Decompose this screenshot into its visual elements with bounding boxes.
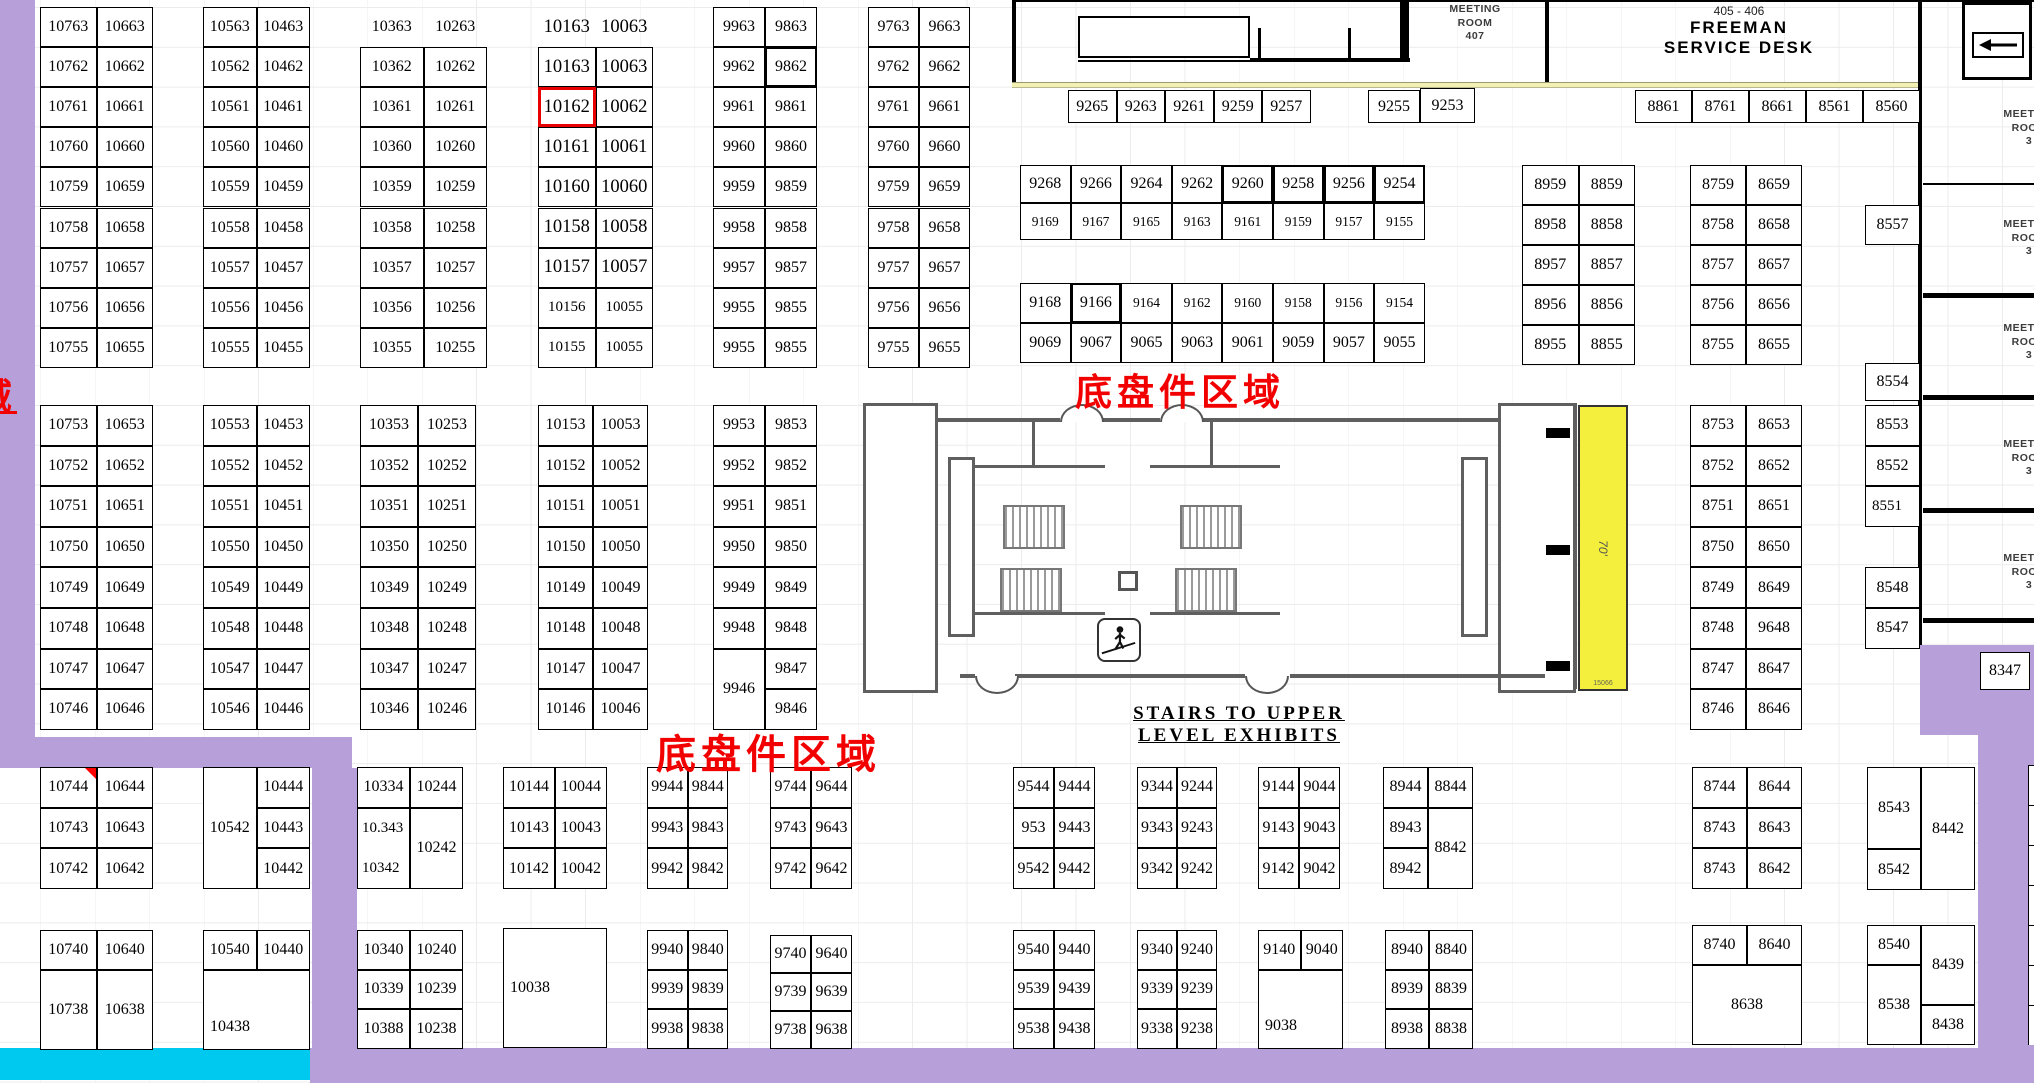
booth-9040[interactable]: 9040 <box>1301 930 1344 970</box>
booth-9955[interactable]: 9955 <box>713 328 765 368</box>
booth-9763[interactable]: 9763 <box>868 7 919 47</box>
booth-9164[interactable]: 9164 <box>1121 283 1172 323</box>
booth-9156[interactable]: 9156 <box>1324 283 1375 323</box>
booth-8761[interactable]: 8761 <box>1692 90 1749 123</box>
booth-9838[interactable]: 9838 <box>688 1009 729 1049</box>
booth-10242[interactable]: 10242 <box>410 808 463 889</box>
booth-8944[interactable]: 8944 <box>1383 767 1428 808</box>
booth-10046[interactable]: 10046 <box>593 689 648 730</box>
booth-10450[interactable]: 10450 <box>257 527 311 568</box>
booth-10548[interactable]: 10548 <box>203 608 257 649</box>
booth-9861[interactable]: 9861 <box>765 87 817 127</box>
booth-10744[interactable]: 10744 <box>40 767 97 808</box>
booth-8838[interactable]: 8838 <box>1429 1009 1473 1049</box>
booth-9339[interactable]: 9339 <box>1137 970 1177 1010</box>
booth-953[interactable]: 953 <box>1013 808 1054 849</box>
booth-9855[interactable]: 9855 <box>765 288 817 328</box>
booth-10460[interactable]: 10460 <box>257 127 311 167</box>
booth-10462[interactable]: 10462 <box>257 47 311 87</box>
booth-9842[interactable]: 9842 <box>688 848 729 889</box>
booth-9263[interactable]: 9263 <box>1117 90 1166 123</box>
booth-9540[interactable]: 9540 <box>1013 930 1054 970</box>
booth-10644[interactable]: 10644 <box>97 767 154 808</box>
booth-10249[interactable]: 10249 <box>418 567 476 608</box>
booth-10239[interactable]: 10239 <box>410 970 463 1010</box>
booth-8647[interactable]: 8647 <box>1746 649 1802 690</box>
booth-8740[interactable]: 8740 <box>1692 925 1747 965</box>
booth-9539[interactable]: 9539 <box>1013 970 1054 1010</box>
booth-9168[interactable]: 9168 <box>1020 283 1071 323</box>
booth-8643[interactable]: 8643 <box>1747 808 1802 849</box>
booth-10057[interactable]: 10057 <box>596 248 654 288</box>
booth-10747[interactable]: 10747 <box>40 649 97 690</box>
booth-10751[interactable]: 10751 <box>40 486 97 527</box>
booth-8538[interactable]: 8538 <box>1867 965 1921 1045</box>
booth-10060[interactable]: 10060 <box>596 167 654 207</box>
booth-10163[interactable]: 10163 <box>538 7 596 47</box>
booth-10150[interactable]: 10150 <box>538 527 593 568</box>
booth-9161[interactable]: 9161 <box>1222 203 1273 241</box>
booth-10049[interactable]: 10049 <box>593 567 648 608</box>
booth-9943[interactable]: 9943 <box>647 808 688 849</box>
booth-9069[interactable]: 9069 <box>1020 323 1071 363</box>
booth-10258[interactable]: 10258 <box>424 208 488 248</box>
booth-9955[interactable]: 9955 <box>713 288 765 328</box>
booth-10356[interactable]: 10356 <box>360 288 424 328</box>
booth-8557[interactable]: 8557 <box>1865 205 1920 245</box>
booth-10149[interactable]: 10149 <box>538 567 593 608</box>
booth-8651[interactable]: 8651 <box>1746 486 1802 527</box>
booth-9662[interactable]: 9662 <box>919 47 970 87</box>
booth-8859[interactable]: 8859 <box>1579 165 1636 205</box>
booth-8757[interactable]: 8757 <box>1690 245 1746 285</box>
booth-9160[interactable]: 9160 <box>1222 283 1273 323</box>
booth-10346[interactable]: 10346 <box>360 689 418 730</box>
booth-10053[interactable]: 10053 <box>593 405 648 446</box>
booth-10561[interactable]: 10561 <box>203 87 257 127</box>
booth-9952[interactable]: 9952 <box>713 446 765 487</box>
booth-10260[interactable]: 10260 <box>424 127 488 167</box>
booth-10552[interactable]: 10552 <box>203 446 257 487</box>
booth-10256[interactable]: 10256 <box>424 288 488 328</box>
booth-9642[interactable]: 9642 <box>811 848 852 889</box>
booth-8856[interactable]: 8856 <box>1579 285 1636 325</box>
booth-9850[interactable]: 9850 <box>765 527 817 568</box>
booth-9958[interactable]: 9958 <box>713 208 765 248</box>
booth-8857[interactable]: 8857 <box>1579 245 1636 285</box>
booth-9848[interactable]: 9848 <box>765 608 817 649</box>
booth-9938[interactable]: 9938 <box>647 1009 688 1049</box>
booth-10453[interactable]: 10453 <box>257 405 311 446</box>
booth-9542[interactable]: 9542 <box>1013 848 1054 889</box>
booth-10740[interactable]: 10740 <box>40 930 97 970</box>
booth-9847[interactable]: 9847 <box>765 649 817 690</box>
booth-10262[interactable]: 10262 <box>424 47 488 87</box>
booth-10253[interactable]: 10253 <box>418 405 476 446</box>
booth-10458[interactable]: 10458 <box>257 208 311 248</box>
booth-10248[interactable]: 10248 <box>418 608 476 649</box>
booth-9949[interactable]: 9949 <box>713 567 765 608</box>
booth-9852[interactable]: 9852 <box>765 446 817 487</box>
booth-8744[interactable]: 8744 <box>1692 767 1747 808</box>
booth-9439[interactable]: 9439 <box>1054 970 1095 1010</box>
booth-8956[interactable]: 8956 <box>1522 285 1579 325</box>
booth-9343[interactable]: 9343 <box>1137 808 1177 849</box>
booth-10360[interactable]: 10360 <box>360 127 424 167</box>
booth-8749[interactable]: 8749 <box>1690 567 1746 608</box>
booth-10349[interactable]: 10349 <box>360 567 418 608</box>
booth-8746[interactable]: 8746 <box>1690 689 1746 730</box>
booth-8844[interactable]: 8844 <box>1428 767 1473 808</box>
booth-9240[interactable]: 9240 <box>1177 930 1217 970</box>
booth-10162[interactable]: 10162 <box>538 87 596 127</box>
booth-10442[interactable]: 10442 <box>257 848 311 889</box>
booth-9166[interactable]: 9166 <box>1071 283 1122 323</box>
booth-9544[interactable]: 9544 <box>1013 767 1054 808</box>
booth-9862[interactable]: 9862 <box>765 47 817 87</box>
booth-9849[interactable]: 9849 <box>765 567 817 608</box>
booth-8839[interactable]: 8839 <box>1429 970 1473 1010</box>
booth-9443[interactable]: 9443 <box>1054 808 1095 849</box>
booth-8438[interactable]: 8438 <box>1921 1005 1975 1045</box>
booth-10555[interactable]: 10555 <box>203 328 257 368</box>
booth-9259[interactable]: 9259 <box>1214 90 1263 123</box>
booth-8855[interactable]: 8855 <box>1579 325 1636 365</box>
booth-10653[interactable]: 10653 <box>97 405 154 446</box>
booth-10463[interactable]: 10463 <box>257 7 311 47</box>
booth-10551[interactable]: 10551 <box>203 486 257 527</box>
booth-9242[interactable]: 9242 <box>1177 848 1217 889</box>
booth-10052[interactable]: 10052 <box>593 446 648 487</box>
booth-10353[interactable]: 10353 <box>360 405 418 446</box>
booth-9743[interactable]: 9743 <box>770 808 811 849</box>
booth-9962[interactable]: 9962 <box>713 47 765 87</box>
booth-9043[interactable]: 9043 <box>1299 808 1340 849</box>
booth-10347[interactable]: 10347 <box>360 649 418 690</box>
booth-8542[interactable]: 8542 <box>1867 849 1921 890</box>
booth-10648[interactable]: 10648 <box>97 608 154 649</box>
booth-10542[interactable]: 10542 <box>203 767 257 889</box>
booth-10047[interactable]: 10047 <box>593 649 648 690</box>
booth-9638[interactable]: 9638 <box>811 1011 852 1049</box>
booth-9663[interactable]: 9663 <box>919 7 970 47</box>
booth-9238[interactable]: 9238 <box>1177 1009 1217 1049</box>
booth-10255[interactable]: 10255 <box>424 328 488 368</box>
booth-10151[interactable]: 10151 <box>538 486 593 527</box>
booth-10642[interactable]: 10642 <box>97 848 154 889</box>
booth-9855[interactable]: 9855 <box>765 328 817 368</box>
booth-8638[interactable]: 8638 <box>1692 965 1802 1045</box>
booth-10142[interactable]: 10142 <box>503 848 555 889</box>
booth-10157[interactable]: 10157 <box>538 248 596 288</box>
booth-10246[interactable]: 10246 <box>418 689 476 730</box>
booth-9055[interactable]: 9055 <box>1374 323 1425 363</box>
booth-8842[interactable]: 8842 <box>1428 808 1473 889</box>
booth-9044[interactable]: 9044 <box>1299 767 1340 808</box>
booth-9740[interactable]: 9740 <box>770 935 811 973</box>
booth-10452[interactable]: 10452 <box>257 446 311 487</box>
booth-9157[interactable]: 9157 <box>1324 203 1375 241</box>
booth-10247[interactable]: 10247 <box>418 649 476 690</box>
booth-10058[interactable]: 10058 <box>596 208 654 248</box>
booth-10351[interactable]: 10351 <box>360 486 418 527</box>
booth-9167[interactable]: 9167 <box>1071 203 1122 241</box>
booth-10358[interactable]: 10358 <box>360 208 424 248</box>
booth-10361[interactable]: 10361 <box>360 87 424 127</box>
booth-9840[interactable]: 9840 <box>688 930 729 970</box>
booth-9254[interactable]: 9254 <box>1374 165 1425 203</box>
booth-10657[interactable]: 10657 <box>97 248 154 288</box>
booth-10357[interactable]: 10357 <box>360 248 424 288</box>
booth-10240[interactable]: 10240 <box>410 930 463 970</box>
booth-9659[interactable]: 9659 <box>919 167 970 207</box>
booth-10334[interactable]: 10334 <box>357 767 410 808</box>
booth-9859[interactable]: 9859 <box>765 167 817 207</box>
booth-9159[interactable]: 9159 <box>1273 203 1324 241</box>
booth-9042[interactable]: 9042 <box>1299 848 1340 889</box>
booth-10461[interactable]: 10461 <box>257 87 311 127</box>
booth-8750[interactable]: 8750 <box>1690 527 1746 568</box>
booth-10238[interactable]: 10238 <box>410 1009 463 1049</box>
booth-8548[interactable]: 8548 <box>1865 567 1920 608</box>
booth-8655[interactable]: 8655 <box>1746 325 1802 365</box>
booth-10158[interactable]: 10158 <box>538 208 596 248</box>
booth-8657[interactable]: 8657 <box>1746 245 1802 285</box>
booth-10558[interactable]: 10558 <box>203 208 257 248</box>
booth-9643[interactable]: 9643 <box>811 808 852 849</box>
booth-9756[interactable]: 9756 <box>868 288 919 328</box>
booth-9656[interactable]: 9656 <box>919 288 970 328</box>
booth-10055[interactable]: 10055 <box>596 288 654 328</box>
booth-10455[interactable]: 10455 <box>257 328 311 368</box>
booth-10055[interactable]: 10055 <box>596 328 654 368</box>
booth-10755[interactable]: 10755 <box>40 328 97 368</box>
booth-8861[interactable]: 8861 <box>1635 90 1692 123</box>
booth-10244[interactable]: 10244 <box>410 767 463 808</box>
booth-9939[interactable]: 9939 <box>647 970 688 1010</box>
booth-9163[interactable]: 9163 <box>1172 203 1223 241</box>
booth-9742[interactable]: 9742 <box>770 848 811 889</box>
booth-8553[interactable]: 8553 <box>1865 405 1920 446</box>
booth-9261[interactable]: 9261 <box>1165 90 1214 123</box>
booth-10643[interactable]: 10643 <box>97 808 154 849</box>
booth-10655[interactable]: 10655 <box>97 328 154 368</box>
booth-9639[interactable]: 9639 <box>811 973 852 1011</box>
booth-9340[interactable]: 9340 <box>1137 930 1177 970</box>
booth-10662[interactable]: 10662 <box>97 47 154 87</box>
booth-10355[interactable]: 10355 <box>360 328 424 368</box>
booth-10456[interactable]: 10456 <box>257 288 311 328</box>
booth-10263[interactable]: 10263 <box>424 7 488 47</box>
booth-9655[interactable]: 9655 <box>919 328 970 368</box>
booth-8644[interactable]: 8644 <box>1747 767 1802 808</box>
booth-8640[interactable]: 8640 <box>1747 925 1802 965</box>
booth-9538[interactable]: 9538 <box>1013 1009 1054 1049</box>
booth-10449[interactable]: 10449 <box>257 567 311 608</box>
booth-10652[interactable]: 10652 <box>97 446 154 487</box>
booth-9264[interactable]: 9264 <box>1121 165 1172 203</box>
booth-10549[interactable]: 10549 <box>203 567 257 608</box>
booth-10352[interactable]: 10352 <box>360 446 418 487</box>
booth-9759[interactable]: 9759 <box>868 167 919 207</box>
booth-10155[interactable]: 10155 <box>538 328 596 368</box>
booth-9144[interactable]: 9144 <box>1258 767 1299 808</box>
booth-10161[interactable]: 10161 <box>538 127 596 167</box>
booth-9140[interactable]: 9140 <box>1258 930 1301 970</box>
booth-10759[interactable]: 10759 <box>40 167 97 207</box>
booth-10447[interactable]: 10447 <box>257 649 311 690</box>
booth-10160[interactable]: 10160 <box>538 167 596 207</box>
booth-10638[interactable]: 10638 <box>97 970 154 1050</box>
booth-10156[interactable]: 10156 <box>538 288 596 328</box>
booth-9258[interactable]: 9258 <box>1273 165 1324 203</box>
booth-10640[interactable]: 10640 <box>97 930 154 970</box>
booth-10748[interactable]: 10748 <box>40 608 97 649</box>
booth-10459[interactable]: 10459 <box>257 167 311 207</box>
booth-10546[interactable]: 10546 <box>203 689 257 730</box>
booth-10547[interactable]: 10547 <box>203 649 257 690</box>
booth-9067[interactable]: 9067 <box>1071 323 1122 363</box>
booth-8650[interactable]: 8650 <box>1746 527 1802 568</box>
booth-8955[interactable]: 8955 <box>1522 325 1579 365</box>
booth-10556[interactable]: 10556 <box>203 288 257 328</box>
booth-9256[interactable]: 9256 <box>1324 165 1375 203</box>
booth-8642[interactable]: 8642 <box>1747 848 1802 889</box>
booth-9758[interactable]: 9758 <box>868 208 919 248</box>
booth-10146[interactable]: 10146 <box>538 689 593 730</box>
booth-8958[interactable]: 8958 <box>1522 205 1579 245</box>
booth-8755[interactable]: 8755 <box>1690 325 1746 365</box>
booth-10339[interactable]: 10339 <box>357 970 410 1010</box>
booth-8943[interactable]: 8943 <box>1383 808 1428 849</box>
booth-9061[interactable]: 9061 <box>1222 323 1273 363</box>
booth-10261[interactable]: 10261 <box>424 87 488 127</box>
booth-10650[interactable]: 10650 <box>97 527 154 568</box>
booth-9739[interactable]: 9739 <box>770 973 811 1011</box>
booth-9963[interactable]: 9963 <box>713 7 765 47</box>
booth-10762[interactable]: 10762 <box>40 47 97 87</box>
booth-10761[interactable]: 10761 <box>40 87 97 127</box>
booth-9442[interactable]: 9442 <box>1054 848 1095 889</box>
booth-9244[interactable]: 9244 <box>1177 767 1217 808</box>
booth-8653[interactable]: 8653 <box>1746 405 1802 446</box>
booth-10756[interactable]: 10756 <box>40 288 97 328</box>
booth-9158[interactable]: 9158 <box>1273 283 1324 323</box>
booth-8551[interactable]: 8551 <box>1865 486 1920 527</box>
booth-9661[interactable]: 9661 <box>919 87 970 127</box>
booth-8552[interactable]: 8552 <box>1865 446 1920 487</box>
booth-9942[interactable]: 9942 <box>647 848 688 889</box>
booth-10738[interactable]: 10738 <box>40 970 97 1050</box>
booth-10350[interactable]: 10350 <box>360 527 418 568</box>
booth-8646[interactable]: 8646 <box>1746 689 1802 730</box>
booth-9760[interactable]: 9760 <box>868 127 919 167</box>
booth-9243[interactable]: 9243 <box>1177 808 1217 849</box>
booth-10440[interactable]: 10440 <box>257 930 311 970</box>
booth-10144[interactable]: 10144 <box>503 767 555 808</box>
booth-10044[interactable]: 10044 <box>555 767 607 808</box>
booth-10051[interactable]: 10051 <box>593 486 648 527</box>
booth-8540[interactable]: 8540 <box>1867 925 1921 965</box>
booth-10348[interactable]: 10348 <box>360 608 418 649</box>
booth-9162[interactable]: 9162 <box>1172 283 1223 323</box>
booth-10557[interactable]: 10557 <box>203 248 257 288</box>
booth-10656[interactable]: 10656 <box>97 288 154 328</box>
booth-10388[interactable]: 10388 <box>357 1009 410 1049</box>
booth-8840[interactable]: 8840 <box>1429 930 1473 970</box>
booth-9344[interactable]: 9344 <box>1137 767 1177 808</box>
booth-9657[interactable]: 9657 <box>919 248 970 288</box>
booth-10457[interactable]: 10457 <box>257 248 311 288</box>
booth-10448[interactable]: 10448 <box>257 608 311 649</box>
booth-8759[interactable]: 8759 <box>1690 165 1746 205</box>
booth-9658[interactable]: 9658 <box>919 208 970 248</box>
booth-9757[interactable]: 9757 <box>868 248 919 288</box>
booth-10438[interactable]: 10438 <box>203 970 310 1050</box>
booth-9142[interactable]: 9142 <box>1258 848 1299 889</box>
booth-10663[interactable]: 10663 <box>97 7 154 47</box>
booth-10359[interactable]: 10359 <box>360 167 424 207</box>
booth-10152[interactable]: 10152 <box>538 446 593 487</box>
booth-9063[interactable]: 9063 <box>1172 323 1223 363</box>
booth-9660[interactable]: 9660 <box>919 127 970 167</box>
booth-9960[interactable]: 9960 <box>713 127 765 167</box>
booth-8658[interactable]: 8658 <box>1746 205 1802 245</box>
booth-9738[interactable]: 9738 <box>770 1011 811 1049</box>
booth-10757[interactable]: 10757 <box>40 248 97 288</box>
booth-10063[interactable]: 10063 <box>596 7 654 47</box>
booth-8659[interactable]: 8659 <box>1746 165 1802 205</box>
booth-10550[interactable]: 10550 <box>203 527 257 568</box>
booth-9266[interactable]: 9266 <box>1071 165 1122 203</box>
booth-9239[interactable]: 9239 <box>1177 970 1217 1010</box>
booth-10661[interactable]: 10661 <box>97 87 154 127</box>
booth-8758[interactable]: 8758 <box>1690 205 1746 245</box>
booth-9755[interactable]: 9755 <box>868 328 919 368</box>
booth-8439[interactable]: 8439 <box>1921 925 1975 1005</box>
booth-9059[interactable]: 9059 <box>1273 323 1324 363</box>
booth-10061[interactable]: 10061 <box>596 127 654 167</box>
booth-10043[interactable]: 10043 <box>555 808 607 849</box>
booth-10649[interactable]: 10649 <box>97 567 154 608</box>
booth-10659[interactable]: 10659 <box>97 167 154 207</box>
booth-10760[interactable]: 10760 <box>40 127 97 167</box>
booth-9438[interactable]: 9438 <box>1054 1009 1095 1049</box>
booth-10252[interactable]: 10252 <box>418 446 476 487</box>
booth-10563[interactable]: 10563 <box>203 7 257 47</box>
booth-9950[interactable]: 9950 <box>713 527 765 568</box>
booth-10746[interactable]: 10746 <box>40 689 97 730</box>
booth-10658[interactable]: 10658 <box>97 208 154 248</box>
booth-9953[interactable]: 9953 <box>713 405 765 446</box>
booth-9262[interactable]: 9262 <box>1172 165 1223 203</box>
booth-9155[interactable]: 9155 <box>1374 203 1425 241</box>
booth-9839[interactable]: 9839 <box>688 970 729 1010</box>
booth-9762[interactable]: 9762 <box>868 47 919 87</box>
booth-8442[interactable]: 8442 <box>1921 767 1975 890</box>
booth-9853[interactable]: 9853 <box>765 405 817 446</box>
booth-9946[interactable]: 9946 <box>713 649 765 730</box>
booth-9444[interactable]: 9444 <box>1054 767 1095 808</box>
booth-10444[interactable]: 10444 <box>257 767 311 808</box>
booth-8858[interactable]: 8858 <box>1579 205 1636 245</box>
booth-8940[interactable]: 8940 <box>1385 930 1429 970</box>
booth-10153[interactable]: 10153 <box>538 405 593 446</box>
booth-8554[interactable]: 8554 <box>1865 363 1920 401</box>
booth-8751[interactable]: 8751 <box>1690 486 1746 527</box>
booth-9761[interactable]: 9761 <box>868 87 919 127</box>
booth-8938[interactable]: 8938 <box>1385 1009 1429 1049</box>
